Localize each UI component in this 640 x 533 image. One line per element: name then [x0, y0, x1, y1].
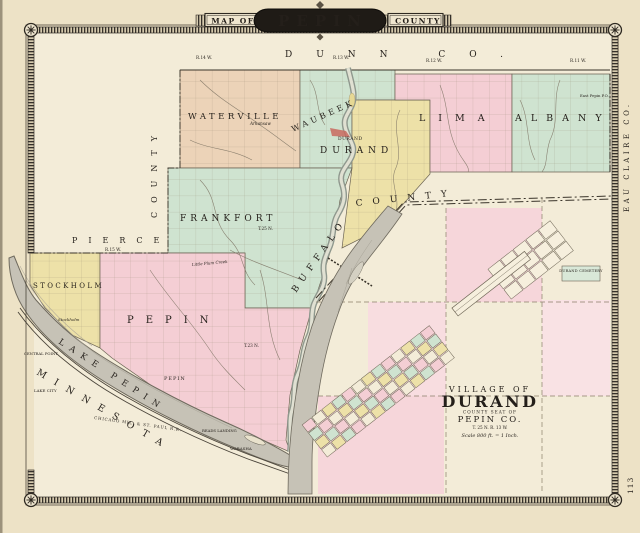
stockholm-label: STOCKHOLM: [33, 282, 104, 290]
atlas-sheet: DURAND CEMETERY VILLAGE OF DURAND COUNTY…: [0, 0, 640, 533]
pepin-village-label: PEPIN: [164, 376, 186, 382]
albany-label: ALBANY: [514, 113, 611, 124]
inset-township-range: T. 25 N. R. 13 W.: [473, 425, 508, 430]
range-13-label: R.13 W.: [333, 55, 349, 60]
arkansaw-label: Arkansaw: [249, 121, 271, 126]
durand-village-label: DURAND: [338, 136, 363, 142]
wabasha-label: WABASHA: [230, 446, 252, 451]
pierce-label: PIERCE: [72, 236, 170, 245]
page-edge: [0, 0, 3, 533]
central-point-label: CENTRAL POINT: [24, 351, 58, 356]
page-number: 113: [626, 477, 635, 494]
stockholm-village-label: Stockholm: [58, 317, 80, 322]
township-23-label: T.23 N.: [244, 343, 259, 348]
inset-seat: COUNTY SEAT OF: [463, 410, 517, 415]
range-11-label: R.11 W.: [570, 58, 586, 63]
pepin-township-label: PEPIN: [127, 315, 220, 326]
lima-label: LIMA: [419, 113, 498, 124]
reads-landing-label: READS LANDING: [202, 428, 237, 433]
inset-pink-zone: [542, 300, 610, 396]
banner-ornament: [196, 15, 205, 26]
pierce-county-vertical-label: COUNTY: [150, 127, 159, 218]
eau-claire-county-label: EAU CLAIRE CO.: [623, 101, 631, 212]
durand-cemetery-label: DURAND CEMETERY: [559, 269, 603, 273]
range-14-label: R.14 W.: [196, 55, 212, 60]
range-12-label: R.12 W.: [426, 58, 442, 63]
inset-scale: Scale 800 ft. = 1 Inch.: [462, 433, 519, 439]
corner-rosette: [25, 24, 38, 37]
range-15-label: R.15 W.: [105, 247, 121, 252]
inset-county: PEPIN CO.: [458, 415, 523, 425]
banner-county-word: COUNTY: [395, 17, 441, 26]
dunn-county-label: DUNN CO.: [285, 50, 527, 60]
inset-name: DURAND: [441, 392, 538, 411]
east-pepin-label: East Pepin P.O.: [580, 93, 609, 98]
corner-rosette: [609, 24, 622, 37]
corner-rosette: [609, 494, 622, 507]
frankfort-label: FRANKFORT: [180, 214, 276, 224]
county-map-svg: DURAND CEMETERY VILLAGE OF DURAND COUNTY…: [0, 0, 640, 533]
banner-county-name: PEPIN: [278, 12, 368, 30]
banner-map-of: MAP OF: [211, 17, 254, 26]
township-25-label: T.25 N.: [258, 226, 273, 231]
lake-city-label: LAKE CITY: [34, 388, 57, 393]
durand-cemetery: DURAND CEMETERY: [559, 266, 603, 281]
durand-township-label: DURAND: [320, 146, 393, 156]
corner-rosette: [25, 494, 38, 507]
